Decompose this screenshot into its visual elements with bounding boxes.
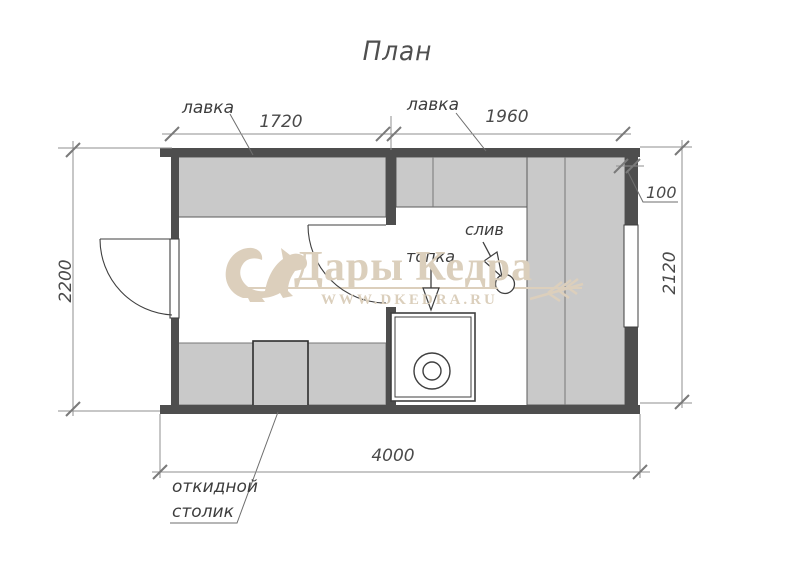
bench-top-left-room [178, 157, 386, 217]
wall-partition-upper [386, 157, 396, 225]
window-right-wall [624, 225, 638, 327]
bench-top-right-room [396, 157, 527, 207]
dim-wall-thickness: 100 [646, 183, 677, 202]
drain-label: слив [465, 220, 504, 239]
folding-table [253, 341, 308, 407]
wall-left-lower [171, 318, 179, 405]
folding-table-label-line2: столик [172, 502, 234, 522]
wall-top [160, 148, 640, 157]
dim-total-length: 4000 [367, 446, 419, 466]
entry-door-swing-arc [100, 239, 172, 315]
wall-right-lower [625, 327, 638, 405]
dim-right-room-width: 1960 [481, 107, 533, 127]
dim-left-room-width: 1720 [255, 112, 307, 132]
dim-height-right: 2120 [660, 243, 680, 303]
stove-circle-inner [423, 362, 441, 380]
folding-table-label-line1: откидной [172, 477, 258, 497]
entry-door-leaf [170, 239, 179, 318]
watermark-brand: Дары Кедра [294, 243, 533, 291]
bench-right-label: лавка [407, 95, 459, 115]
floor-plan-page: План лавка лавка 1720 1960 100 2200 2120… [0, 0, 800, 565]
dim-height-left: 2200 [56, 251, 76, 311]
bench-left-label: лавка [182, 98, 234, 118]
wall-left-upper [171, 157, 179, 239]
watermark-url: WWW.DKEDRA.RU [321, 292, 498, 309]
stove [391, 313, 475, 401]
page-title: План [345, 36, 451, 67]
wall-bottom [160, 405, 640, 414]
